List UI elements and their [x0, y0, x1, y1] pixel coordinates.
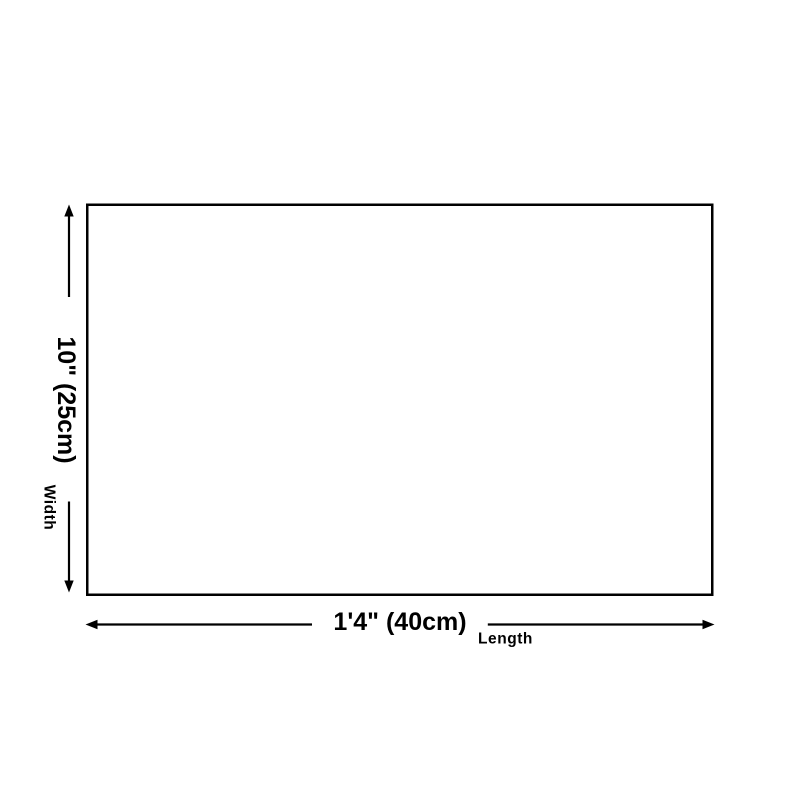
svg-text:Width: Width: [41, 485, 58, 530]
svg-text:Length: Length: [478, 631, 533, 648]
svg-text:10" (25cm): 10" (25cm): [52, 336, 80, 463]
svg-text:1'4" (40cm): 1'4" (40cm): [333, 608, 466, 636]
